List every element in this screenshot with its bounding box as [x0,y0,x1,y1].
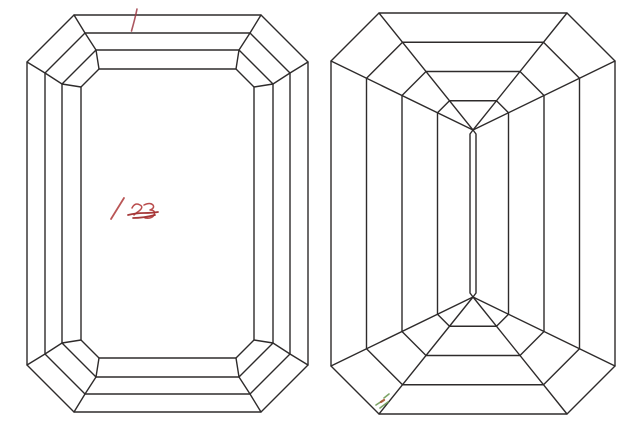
diamond-diagram-svg [0,0,640,430]
pavilion-step-ring [402,72,544,356]
keel-line [473,130,476,297]
corner-facet-line [27,62,81,87]
corner-facet-line [236,15,261,69]
corner-facet-line [27,340,81,365]
corner-facet-line [236,358,261,412]
step-facet-ring [81,69,254,358]
corner-facet-line [74,358,99,412]
smudge-red-dot-annotation [381,400,384,402]
red-scribble-strike-annotation [128,212,158,218]
red-tick-mark-annotation [132,9,138,31]
girdle-outline [27,15,308,412]
diagram-canvas [0,0,640,430]
crown-view-drawing [27,15,308,412]
keel-line [470,130,473,297]
step-facet-ring [62,50,273,377]
pavilion-view-drawing [331,13,615,414]
corner-facet-line [74,15,99,69]
corner-facet-line [254,340,308,365]
pavilion-step-ring [438,101,509,327]
corner-facet-line [254,62,308,87]
red-slash-annotation [111,198,124,219]
girdle-outline [331,13,615,414]
